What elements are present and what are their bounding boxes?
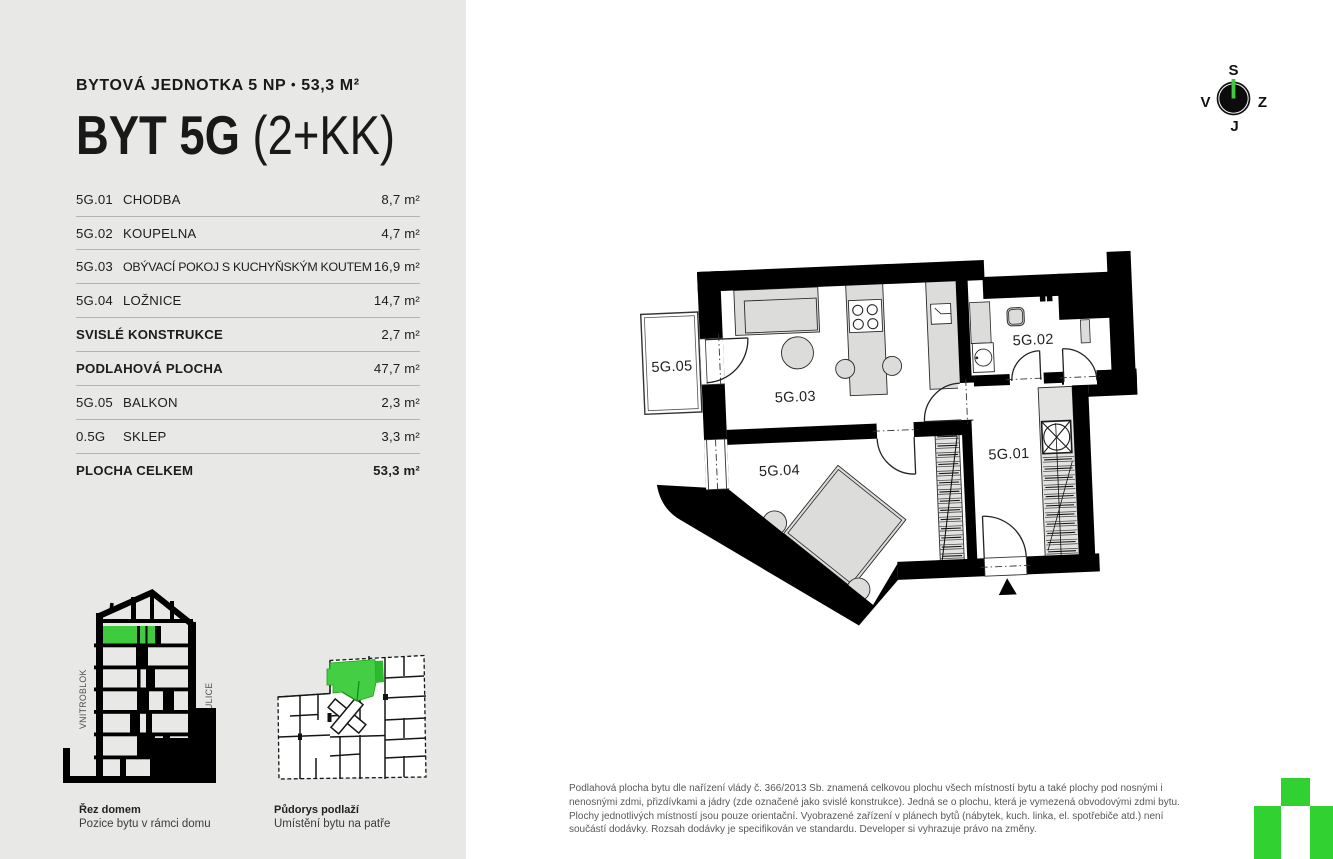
svg-text:J: J [1230,118,1238,135]
svg-text:Z: Z [1258,94,1267,111]
svg-text:5G.01: 5G.01 [988,446,1030,464]
svg-text:5G.03: 5G.03 [775,389,817,407]
svg-text:5G.02: 5G.02 [1012,332,1054,350]
svg-text:5G.04: 5G.04 [759,462,801,480]
svg-text:5G.05: 5G.05 [651,358,693,376]
svg-text:S: S [1228,62,1238,79]
svg-text:V: V [1200,94,1210,111]
